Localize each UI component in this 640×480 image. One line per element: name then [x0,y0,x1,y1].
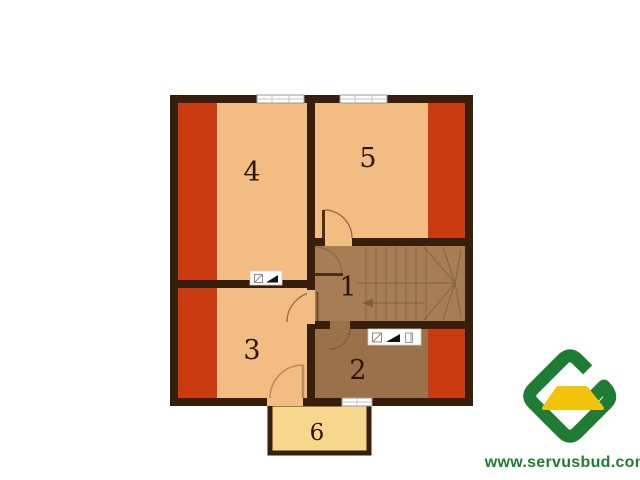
floor-plan-screenshot: 4 5 1 3 2 6 www.servusbud.com [0,0,640,480]
sloped-ceiling-left [178,103,217,398]
sloped-ceiling-right-bottom [428,329,465,398]
symbol-plate-2 [368,329,421,345]
wall-room4-room5 [307,103,315,246]
wall-room4-room3 [178,280,308,288]
window-bottom [342,398,372,406]
floor-plan-canvas: 4 5 1 3 2 6 www.servusbud.com [0,0,640,480]
outer-wall-top [170,95,473,103]
logo-website-link[interactable]: www.servusbud.com [484,454,640,471]
room-1-label: 1 [339,272,356,303]
outer-wall-left [170,95,178,406]
room-6-label: 6 [310,420,325,446]
opening-room3 [307,290,315,324]
room-2-label: 2 [349,355,366,386]
outer-wall-right [465,95,473,406]
window-top-right [340,95,387,103]
opening-room5 [325,238,352,246]
window-top-left [257,95,304,103]
room-4-label: 4 [243,157,260,188]
sloped-ceiling-right-top [428,103,465,238]
symbol-plate-1 [250,271,282,285]
opening-balcony [267,398,303,406]
room-5-label: 5 [359,143,376,174]
opening-bathroom [330,321,350,329]
room-3-label: 3 [243,335,260,366]
outer-wall-bottom [170,398,473,406]
